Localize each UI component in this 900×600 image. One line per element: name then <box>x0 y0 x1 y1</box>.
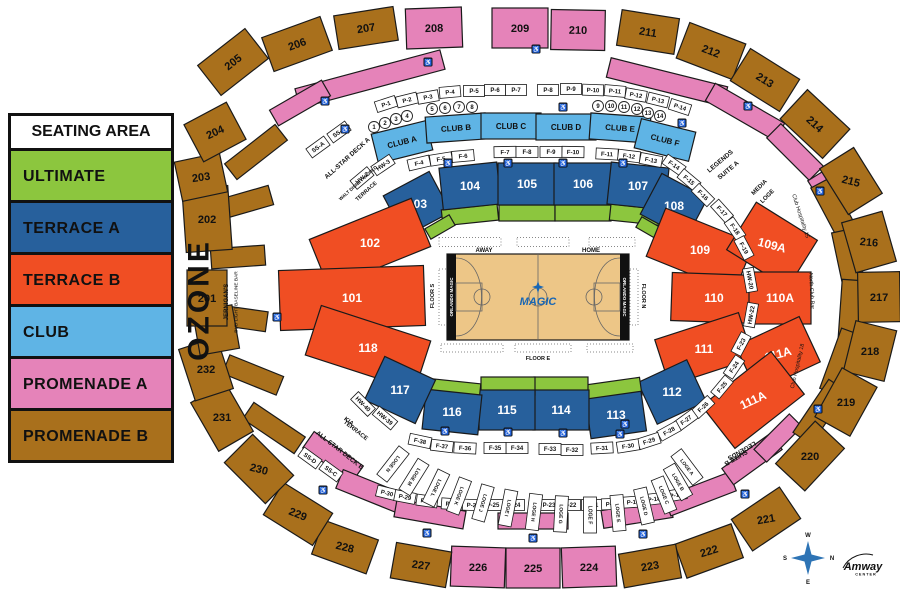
svg-text:♿: ♿ <box>816 187 824 195</box>
svg-text:F-6: F-6 <box>458 154 468 161</box>
box-f36: F-36 <box>454 442 477 454</box>
row-number-5: 5 <box>427 104 438 115</box>
wheelchair-icon: ♿ <box>321 97 330 106</box>
legend-item-promenade-b: PROMENADE B <box>11 408 171 460</box>
svg-text:P-6: P-6 <box>490 88 500 94</box>
seat-dots <box>517 238 569 247</box>
wheelchair-icon: ♿ <box>678 119 687 128</box>
box-f9: F-9 <box>540 147 562 158</box>
svg-text:F-11: F-11 <box>601 152 614 159</box>
svg-text:♿: ♿ <box>559 103 567 111</box>
svg-text:116: 116 <box>442 405 462 419</box>
svg-text:♿: ♿ <box>744 102 752 110</box>
wheelchair-icon: ♿ <box>741 490 750 499</box>
box-p8: P-8 <box>538 85 559 96</box>
box-loge-m: LOGE M <box>399 458 429 495</box>
basketball-court: ORLANDO MAGICORLANDO MAGICMAGIC <box>447 254 629 340</box>
label-home: HOME <box>582 248 600 254</box>
row-number-10: 10 <box>606 101 617 112</box>
svg-text:ORLANDO MAGIC: ORLANDO MAGIC <box>622 278 627 318</box>
svg-text:N: N <box>830 556 834 562</box>
svg-text:♿: ♿ <box>559 429 567 437</box>
svg-text:♿: ♿ <box>639 530 647 538</box>
wheelchair-icon: ♿ <box>619 159 628 168</box>
wheelchair-icon: ♿ <box>814 405 823 414</box>
arena-seating-map: 2052062072082092102112122132142152162172… <box>0 0 900 600</box>
label-jernigans: JERNIGAN'S <box>224 284 230 320</box>
box-p3: P-3 <box>417 90 440 104</box>
svg-text:118: 118 <box>358 341 378 355</box>
label-floor-n: FLOOR N <box>640 284 646 309</box>
box-loge-g: LOGE G <box>554 496 569 533</box>
svg-text:♿: ♿ <box>321 97 329 105</box>
label-away: AWAY <box>475 248 492 254</box>
box-p2: P-2 <box>395 92 418 108</box>
wheelchair-icon: ♿ <box>559 159 568 168</box>
legend-header: SEATING AREA <box>11 116 171 148</box>
label-ozone: OZONE <box>183 239 216 361</box>
compass-label-e: E <box>806 580 810 586</box>
svg-text:♿: ♿ <box>619 159 627 167</box>
svg-text:P-9: P-9 <box>566 87 576 93</box>
section-114: 114 <box>533 390 589 430</box>
svg-text:109: 109 <box>690 243 710 257</box>
svg-text:217: 217 <box>870 292 888 304</box>
svg-text:FLOOR N: FLOOR N <box>640 284 646 309</box>
section-116: 116 <box>422 389 482 435</box>
box-f31: F-31 <box>591 442 614 454</box>
svg-text:LOGE: LOGE <box>760 189 776 205</box>
svg-text:BUD LIGHT BASELINE BAR: BUD LIGHT BASELINE BAR <box>234 271 240 333</box>
seating-area-legend: SEATING AREA ULTIMATETERRACE ATERRACE BC… <box>8 113 174 463</box>
box-loge-f: LOGE F <box>584 497 597 533</box>
section-227: 227 <box>390 542 451 587</box>
svg-text:F-33: F-33 <box>544 447 557 453</box>
seat-dots <box>589 238 635 247</box>
box-p1: P-1 <box>374 96 397 113</box>
wheelchair-icon: ♿ <box>532 45 541 54</box>
svg-text:110: 110 <box>704 291 724 305</box>
legend-item-ultimate: ULTIMATE <box>11 148 171 200</box>
svg-text:218: 218 <box>861 346 879 358</box>
row-number-14: 14 <box>655 111 666 122</box>
section-205: 205 <box>198 29 269 96</box>
svg-text:114: 114 <box>551 403 571 417</box>
svg-text:111: 111 <box>695 342 714 356</box>
svg-text:216: 216 <box>859 236 878 250</box>
section-203: 203 <box>174 153 227 202</box>
wheelchair-icon: ♿ <box>529 534 538 543</box>
section-110A: 110A <box>749 272 811 324</box>
section-106-ultimate <box>555 205 611 221</box>
svg-text:♿: ♿ <box>621 420 629 428</box>
wheelchair-icon: ♿ <box>441 427 450 436</box>
label-kia-terrace: TERRACE <box>342 420 369 443</box>
section-224: 224 <box>561 546 616 588</box>
wheelchair-icon: ♿ <box>341 125 350 134</box>
svg-text:CLUB D: CLUB D <box>551 123 581 132</box>
svg-text:♿: ♿ <box>529 534 537 542</box>
section-club-b: CLUB B <box>425 113 487 143</box>
svg-text:♿: ♿ <box>319 486 327 494</box>
box-f29: F-29 <box>637 432 661 449</box>
svg-text:F-32: F-32 <box>566 448 579 454</box>
box-f34: F-34 <box>506 443 528 454</box>
seat-dots <box>587 344 633 352</box>
svg-text:11: 11 <box>621 105 628 111</box>
box-p11: P-11 <box>604 85 626 98</box>
section-211: 211 <box>617 10 680 55</box>
row-number-4: 4 <box>402 111 413 122</box>
svg-text:HOME: HOME <box>582 248 600 254</box>
svg-text:FLOOR S: FLOOR S <box>430 283 436 308</box>
section-104: 104 <box>439 162 501 210</box>
label-bud-light-baseline-bar: BUD LIGHT BASELINE BAR <box>234 271 240 333</box>
section-105: 105 <box>498 163 556 205</box>
svg-text:202: 202 <box>198 214 216 226</box>
svg-text:OZONE: OZONE <box>183 239 216 361</box>
wheelchair-icon: ♿ <box>616 430 625 439</box>
row-number-11: 11 <box>619 102 630 113</box>
box-p12: P-12 <box>625 88 648 102</box>
box-f33: F-33 <box>539 444 561 455</box>
box-ss-a: SS-A <box>306 136 330 158</box>
box-p5: P-5 <box>464 86 485 97</box>
svg-text:106: 106 <box>573 177 593 191</box>
svg-text:P-11: P-11 <box>608 89 621 96</box>
svg-text:♿: ♿ <box>504 159 512 167</box>
section-105-ultimate <box>499 205 555 221</box>
svg-text:104: 104 <box>460 179 480 193</box>
svg-text:MAGIC: MAGIC <box>520 296 558 308</box>
wheelchair-icon: ♿ <box>423 529 432 538</box>
row-number-1: 1 <box>369 122 380 133</box>
svg-text:208: 208 <box>425 23 444 36</box>
wheelchair-icon: ♿ <box>816 187 825 196</box>
row-number-2: 2 <box>380 118 391 129</box>
section-225: 225 <box>506 548 560 588</box>
svg-text:TERRACE: TERRACE <box>342 420 369 443</box>
svg-text:♿: ♿ <box>424 58 432 66</box>
svg-text:♿: ♿ <box>532 45 540 53</box>
svg-text:♿: ♿ <box>559 159 567 167</box>
box-f30: F-30 <box>616 439 639 453</box>
seat-dots <box>441 344 503 352</box>
legend-item-terrace-b: TERRACE B <box>11 252 171 304</box>
box-p6: P-6 <box>485 85 506 96</box>
svg-text:♿: ♿ <box>616 430 624 438</box>
svg-text:F-8: F-8 <box>523 150 533 156</box>
svg-text:F-7: F-7 <box>500 150 510 156</box>
seat-dots <box>630 269 638 325</box>
box-f7: F-7 <box>494 146 516 157</box>
svg-text:P-8: P-8 <box>543 88 553 94</box>
section-223: 223 <box>618 544 681 588</box>
section-club-c: CLUB C <box>481 113 541 139</box>
svg-text:F-10: F-10 <box>567 150 580 156</box>
wheelchair-icon: ♿ <box>424 58 433 67</box>
row-number-9: 9 <box>593 101 604 112</box>
svg-text:105: 105 <box>517 177 537 191</box>
svg-text:P-23: P-23 <box>543 503 556 509</box>
svg-text:CENTER: CENTER <box>855 572 877 576</box>
compass-star <box>791 541 825 575</box>
svg-text:♿: ♿ <box>741 490 749 498</box>
wheelchair-icon: ♿ <box>319 486 328 495</box>
svg-text:W: W <box>805 533 811 539</box>
svg-text:AWAY: AWAY <box>475 248 492 254</box>
compass-label-s: S <box>783 556 787 562</box>
box-p4: P-4 <box>439 86 461 99</box>
svg-text:♿: ♿ <box>678 119 686 127</box>
wheelchair-icon: ♿ <box>621 420 630 429</box>
svg-text:♿: ♿ <box>273 313 281 321</box>
svg-text:117: 117 <box>390 383 410 397</box>
svg-text:P-4: P-4 <box>445 90 455 97</box>
svg-text:102: 102 <box>360 236 380 250</box>
section-217: 217 <box>858 272 900 323</box>
box-f35: F-35 <box>484 443 506 454</box>
row-number-8: 8 <box>467 102 478 113</box>
row-number-7: 7 <box>454 102 465 113</box>
box-f4: F-4 <box>407 155 431 171</box>
wheelchair-icon: ♿ <box>444 159 453 168</box>
box-loge-n: LOGE N <box>377 446 409 482</box>
svg-text:JERNIGAN'S: JERNIGAN'S <box>224 284 230 320</box>
svg-text:10: 10 <box>608 104 615 110</box>
wheelchair-icon: ♿ <box>639 530 648 539</box>
section-106: 106 <box>554 163 612 205</box>
box-f10: F-10 <box>562 146 584 157</box>
legend-item-club: CLUB <box>11 304 171 356</box>
section-212: 212 <box>676 23 746 80</box>
svg-text:F-36: F-36 <box>459 446 472 453</box>
svg-text:F-34: F-34 <box>511 446 524 452</box>
section-209: 209 <box>492 8 548 48</box>
svg-text:P-10: P-10 <box>587 88 601 94</box>
legend-item-promenade-a: PROMENADE A <box>11 356 171 408</box>
svg-text:P-7: P-7 <box>511 88 521 94</box>
wheelchair-icon: ♿ <box>273 313 282 322</box>
svg-text:E: E <box>806 580 810 586</box>
amway-center-logo: AmwayCENTER <box>843 554 883 576</box>
svg-text:14: 14 <box>657 114 664 120</box>
section-222: 222 <box>675 524 744 578</box>
svg-text:F-35: F-35 <box>489 446 502 452</box>
seat-dots <box>439 269 447 325</box>
label-media-loge2: LOGE <box>760 189 776 205</box>
svg-text:ORLANDO MAGIC: ORLANDO MAGIC <box>449 277 454 317</box>
box-f37: F-37 <box>430 439 453 453</box>
svg-text:♿: ♿ <box>504 428 512 436</box>
wheelchair-icon: ♿ <box>559 429 568 438</box>
box-f8: F-8 <box>516 147 538 158</box>
svg-text:♿: ♿ <box>444 159 452 167</box>
row-number-12: 12 <box>632 104 643 115</box>
svg-text:Amway: Amway <box>843 561 883 573</box>
svg-text:12: 12 <box>634 107 641 113</box>
box-loge-e: LOGE E <box>610 495 626 532</box>
svg-text:♿: ♿ <box>341 125 349 133</box>
box-p10: P-10 <box>582 84 603 96</box>
section-207: 207 <box>334 7 399 50</box>
box-f28: F-28 <box>657 421 682 441</box>
svg-text:209: 209 <box>511 23 529 35</box>
svg-text:LOGE G: LOGE G <box>557 504 564 524</box>
box-p14: P-14 <box>668 99 691 116</box>
svg-text:P-5: P-5 <box>469 89 479 95</box>
compass-label-w: W <box>805 533 811 539</box>
box-f38: F-38 <box>408 433 432 448</box>
svg-text:♿: ♿ <box>423 529 431 537</box>
legend-rows: ULTIMATETERRACE ATERRACE BCLUBPROMENADE … <box>11 148 171 460</box>
svg-text:♿: ♿ <box>814 405 822 413</box>
svg-text:219: 219 <box>837 397 855 409</box>
section-club-d: CLUB D <box>536 114 596 140</box>
row-number-13: 13 <box>643 108 654 119</box>
wheelchair-icon: ♿ <box>504 159 513 168</box>
wheelchair-icon: ♿ <box>559 103 568 112</box>
svg-text:210: 210 <box>569 25 588 37</box>
svg-text:13: 13 <box>645 111 652 117</box>
svg-text:225: 225 <box>524 563 542 575</box>
box-p9: P-9 <box>561 84 582 95</box>
svg-text:227: 227 <box>411 559 431 573</box>
svg-text:232: 232 <box>197 364 215 376</box>
seat-dots <box>439 238 501 247</box>
section-210: 210 <box>551 10 606 51</box>
box-f11: F-11 <box>596 148 619 160</box>
svg-text:226: 226 <box>469 562 487 574</box>
svg-text:CLUB C: CLUB C <box>496 122 526 131</box>
svg-text:♿: ♿ <box>441 427 449 435</box>
wheelchair-icon: ♿ <box>744 102 753 111</box>
svg-text:101: 101 <box>342 291 362 305</box>
svg-text:S: S <box>783 556 787 562</box>
legend-item-terrace-a: TERRACE A <box>11 200 171 252</box>
svg-text:LOGE F: LOGE F <box>586 506 592 525</box>
svg-text:115: 115 <box>497 403 517 417</box>
svg-text:231: 231 <box>213 412 231 424</box>
section-226: 226 <box>450 546 505 588</box>
section-206: 206 <box>262 16 333 71</box>
svg-text:224: 224 <box>580 562 599 574</box>
section-115: 115 <box>479 390 535 430</box>
box-p7: P-7 <box>506 85 527 96</box>
label-floor-s: FLOOR S <box>430 283 436 308</box>
section-204: 204 <box>184 102 246 162</box>
wheelchair-icon: ♿ <box>504 428 513 437</box>
svg-text:112: 112 <box>662 385 682 399</box>
svg-text:FLOOR E: FLOOR E <box>526 356 551 362</box>
box-p13: P-13 <box>646 92 669 108</box>
row-number-6: 6 <box>440 103 451 114</box>
seat-dots <box>515 344 571 352</box>
svg-text:107: 107 <box>628 179 648 193</box>
svg-text:110A: 110A <box>766 291 794 305</box>
svg-text:220: 220 <box>801 451 819 463</box>
svg-text:203: 203 <box>191 171 211 185</box>
section-208: 208 <box>405 7 462 49</box>
label-floor-e: FLOOR E <box>526 356 551 362</box>
row-number-3: 3 <box>391 114 402 125</box>
box-f6: F-6 <box>452 150 475 163</box>
compass-label-n: N <box>830 556 834 562</box>
svg-text:F-31: F-31 <box>596 446 609 453</box>
svg-text:F-9: F-9 <box>547 150 557 156</box>
box-f32: F-32 <box>561 445 583 456</box>
